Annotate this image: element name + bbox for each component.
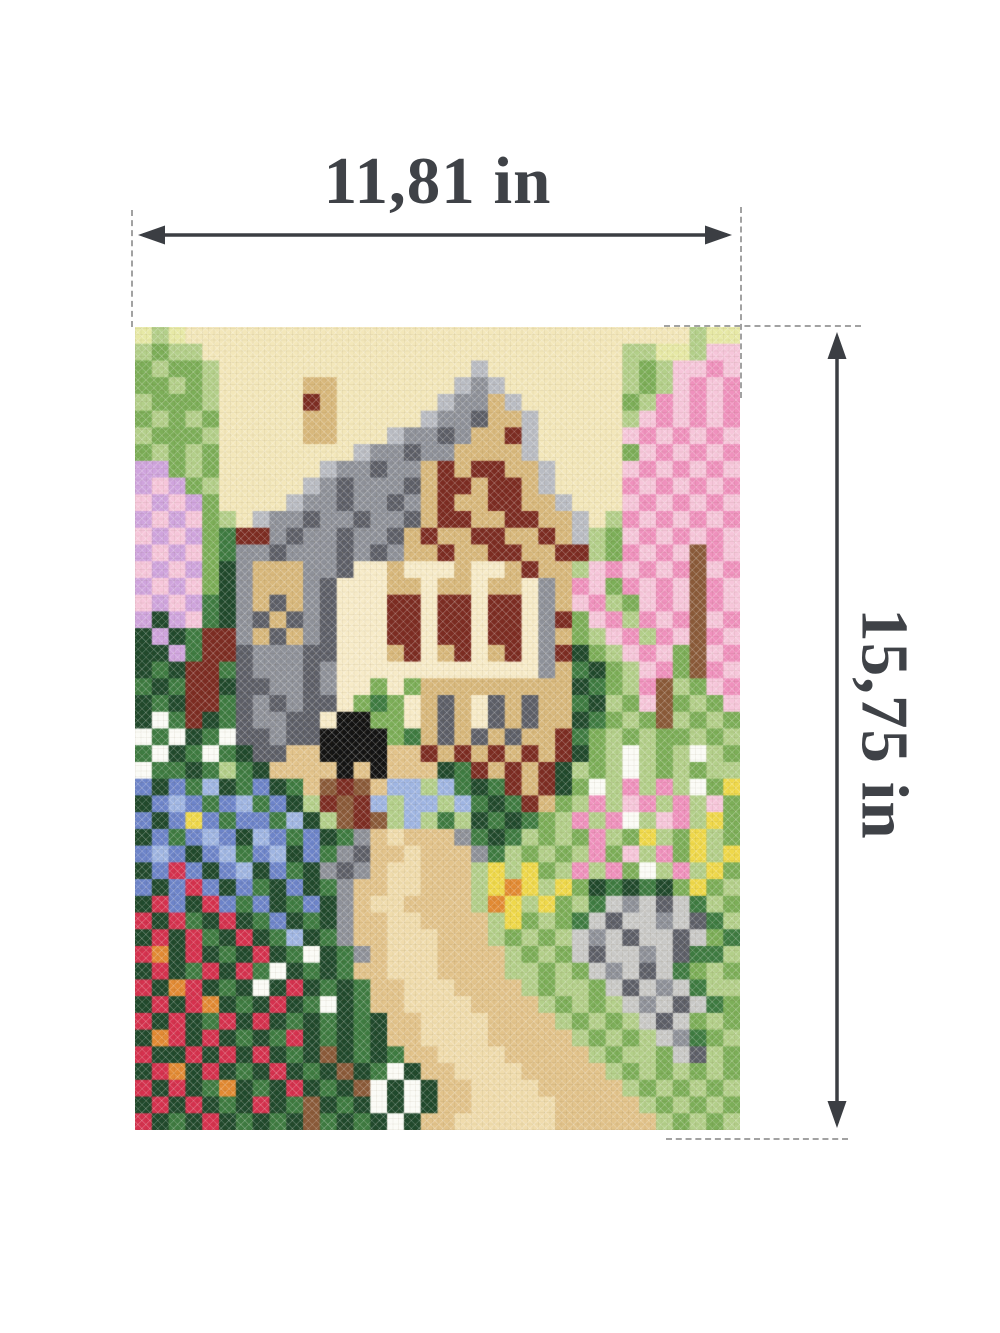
height-dimension-label: 15,75 in: [851, 608, 918, 839]
arrowhead-up-icon: [828, 332, 847, 359]
cross-stitch-artwork: [135, 327, 740, 1130]
arrowhead-right-icon: [705, 226, 732, 245]
width-guide-right: [740, 207, 742, 398]
height-guide-bottom: [666, 1138, 848, 1140]
arrowhead-left-icon: [138, 226, 165, 245]
arrowhead-down-icon: [828, 1101, 847, 1128]
cross-stitch-artwork-frame: [135, 327, 740, 1130]
width-guide-left: [131, 210, 133, 327]
width-dimension-arrow: [135, 219, 735, 251]
width-dimension-label: 11,81 in: [135, 148, 740, 215]
dimension-figure: 11,81 in 15,75 in: [0, 0, 1000, 1333]
